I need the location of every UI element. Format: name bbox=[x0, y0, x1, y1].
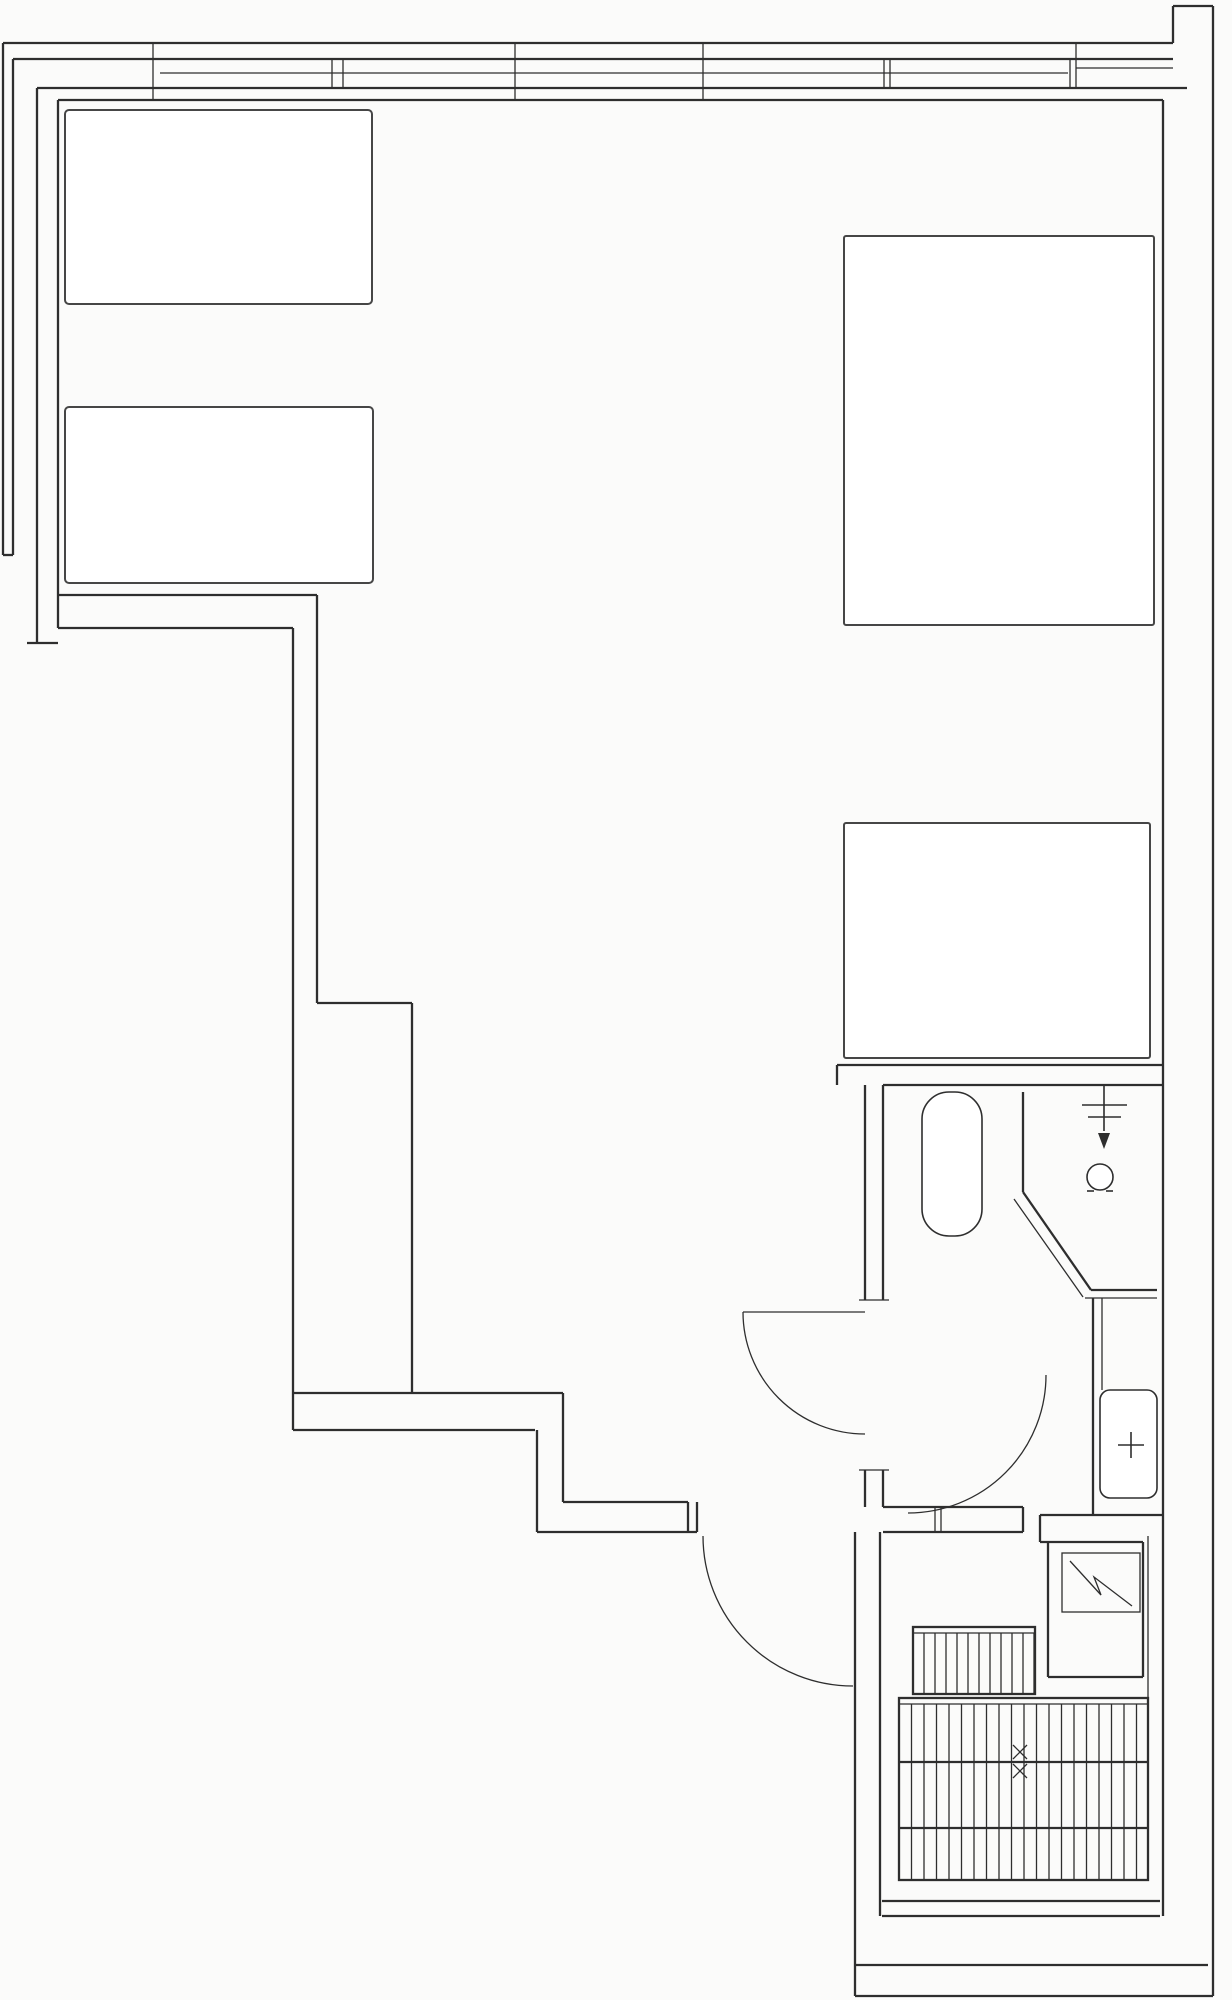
table-right bbox=[844, 823, 1150, 1058]
shower-diagonal-b bbox=[1014, 1199, 1083, 1297]
shower-arrow bbox=[1098, 1133, 1110, 1149]
stairs-lower-hatch bbox=[912, 1704, 1137, 1880]
stair-direction-mark-1 bbox=[1013, 1745, 1027, 1759]
toilet-door-swing bbox=[908, 1375, 1046, 1513]
stairs-upper-hatch bbox=[924, 1633, 1034, 1694]
panel-zigzag bbox=[1070, 1561, 1132, 1606]
bath-door-swing bbox=[743, 1312, 865, 1434]
sink bbox=[1100, 1390, 1157, 1498]
floor-plan-page bbox=[0, 0, 1232, 2000]
bed-left-upper bbox=[65, 110, 372, 304]
shower-diagonal-a bbox=[1023, 1192, 1091, 1290]
shower-drain bbox=[1087, 1164, 1113, 1190]
bed-right bbox=[844, 236, 1154, 625]
stairs-upper-outline bbox=[913, 1627, 1035, 1694]
stair-direction-mark-2 bbox=[1013, 1764, 1027, 1778]
bed-left-lower bbox=[65, 407, 373, 583]
floor-plan bbox=[0, 0, 1232, 2000]
toilet bbox=[922, 1092, 982, 1236]
entry-door-swing bbox=[703, 1536, 853, 1686]
